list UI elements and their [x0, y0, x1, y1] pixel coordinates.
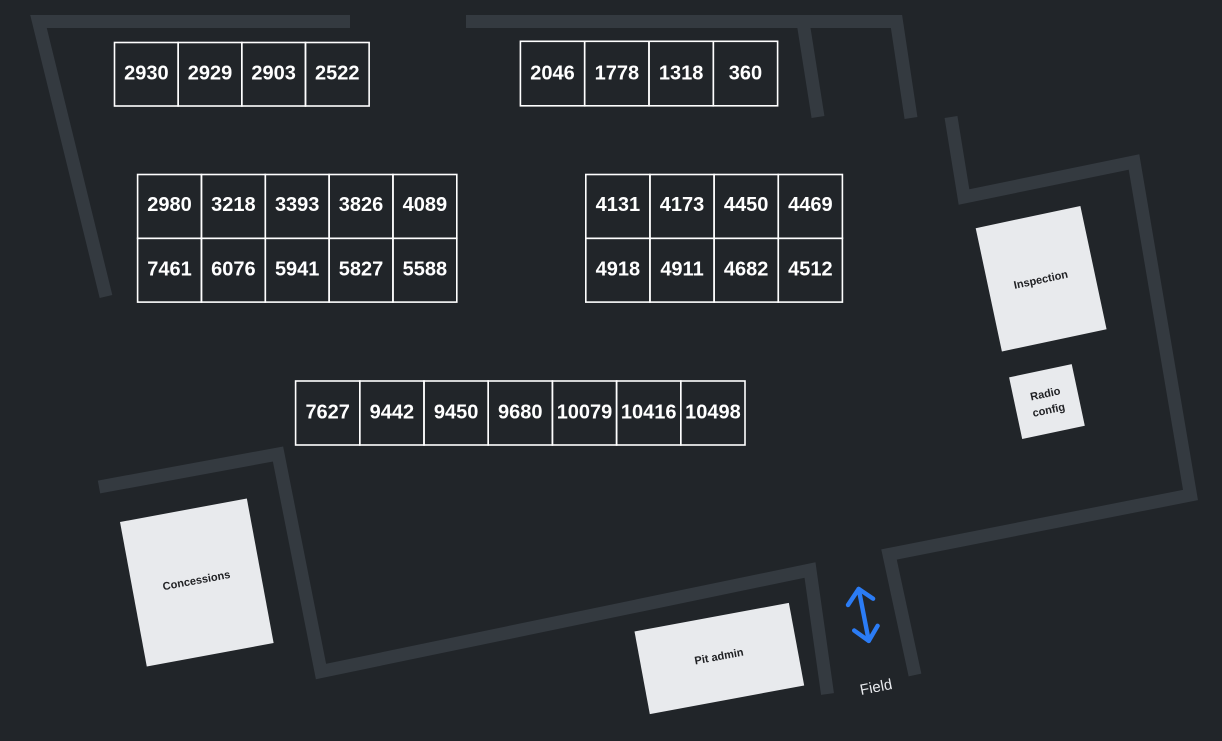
svg-text:4512: 4512: [788, 258, 833, 280]
svg-text:5941: 5941: [275, 258, 320, 280]
svg-text:4089: 4089: [403, 194, 448, 216]
svg-text:2930: 2930: [124, 62, 169, 84]
svg-text:3218: 3218: [211, 194, 256, 216]
svg-text:360: 360: [729, 63, 762, 85]
svg-text:4450: 4450: [724, 194, 769, 216]
svg-text:4173: 4173: [660, 194, 705, 216]
svg-text:2980: 2980: [147, 194, 192, 216]
svg-text:2903: 2903: [251, 62, 296, 84]
svg-text:4469: 4469: [788, 194, 833, 216]
svg-text:10416: 10416: [621, 402, 677, 424]
svg-text:9680: 9680: [498, 402, 543, 424]
svg-text:6076: 6076: [211, 258, 256, 280]
svg-text:5827: 5827: [339, 258, 384, 280]
svg-text:2522: 2522: [315, 62, 360, 84]
svg-text:9442: 9442: [370, 402, 415, 424]
svg-text:2929: 2929: [188, 62, 233, 84]
svg-text:1778: 1778: [595, 63, 640, 85]
svg-text:5588: 5588: [403, 258, 448, 280]
svg-text:4911: 4911: [660, 258, 703, 280]
svg-text:1318: 1318: [659, 63, 704, 85]
svg-text:4918: 4918: [596, 258, 641, 280]
svg-text:4131: 4131: [596, 194, 641, 216]
svg-text:10498: 10498: [685, 402, 741, 424]
svg-text:9450: 9450: [434, 402, 479, 424]
svg-text:3393: 3393: [275, 194, 320, 216]
svg-text:3826: 3826: [339, 194, 384, 216]
svg-text:7627: 7627: [305, 402, 350, 424]
svg-text:4682: 4682: [724, 258, 769, 280]
svg-text:2046: 2046: [530, 63, 575, 85]
svg-text:7461: 7461: [147, 258, 192, 280]
svg-text:10079: 10079: [557, 402, 613, 424]
